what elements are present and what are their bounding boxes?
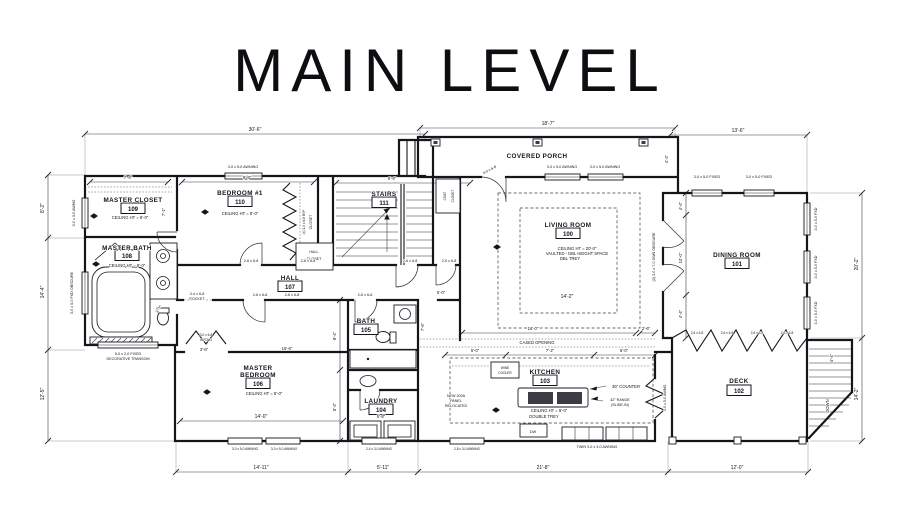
door-porch-label: 3-0 x 6-8 (482, 165, 497, 175)
room-master-closet-number: 109 (128, 207, 139, 213)
transom-label-1: 5-0 x 2-0 FIXED (115, 352, 142, 356)
coat-closet-box (436, 179, 460, 213)
dim-porch-depth: 4'-4" (664, 154, 669, 163)
dim-deck-stair: 4'-4" (829, 353, 834, 362)
dim-top-mid: 18'-7" (542, 121, 555, 127)
room-master-bath-number: 108 (122, 254, 133, 260)
window-porch-1-label: 3-0 x 5-0 AWNING (547, 165, 578, 169)
dim-dining-1: 4'-4" (678, 201, 683, 210)
deck-door-label-3: 2-6 x 6-8 (751, 331, 764, 335)
deck-door-label-2: 2-6 x 6-8 (721, 331, 734, 335)
door-label-7: 2-0 x 6-8 (442, 259, 457, 263)
swing-doors-label: (2) 3-0 x 7-0 SWN OBSCURE (652, 232, 656, 282)
hall-closet-1: HALL (309, 250, 318, 254)
window-mbr-1-label: 3-0 x 5-0 AWNING (232, 447, 259, 451)
dim-laundry: 5'-8" (377, 414, 386, 419)
dim-right-1: 20'-2" (854, 257, 860, 270)
window-dining-r2-label: 3-0 x 5-0 FXD (814, 255, 818, 278)
dim-left-2: 14'-4" (40, 285, 46, 298)
room-laundry-number: 104 (376, 408, 387, 414)
window-dining-r1-label: 3-0 x 5-0 FXD (814, 207, 818, 230)
room-master-bedroom-number: 106 (253, 382, 264, 388)
dim-dining-2: 10'-0" (678, 252, 683, 263)
room-kitchen-number: 103 (540, 379, 551, 385)
panel-note-1: NEW 200A (447, 394, 466, 398)
dim-bath-side: 7'-6" (420, 322, 425, 331)
room-bath: BATH (357, 318, 376, 325)
deck-post (734, 437, 741, 444)
room-deck-number: 102 (734, 389, 745, 395)
room-master-bath: MASTER BATH (102, 245, 152, 252)
sink (360, 376, 376, 387)
room-bedroom1-number: 110 (235, 200, 245, 206)
room-dining: DINING ROOM (713, 252, 761, 259)
dim-closet-side: 7'-1" (161, 207, 166, 216)
room-dining-number: 101 (732, 262, 743, 268)
bedroom-closet-doors: (4) 1-9 x 6-8 BYP (302, 210, 306, 235)
dim-bottom-4: 12'-0" (731, 465, 744, 471)
room-bath-number: 105 (361, 328, 372, 334)
room-stairs: STAIRS (371, 191, 396, 198)
dim-living-offset: 2'-6" (642, 326, 651, 331)
master-closet-note: CEILING HT = 8'-0" (112, 215, 149, 220)
dim-kitchen-3: 5'-0" (620, 348, 629, 353)
room-bedroom1: BEDROOM #1 (217, 190, 263, 197)
dim-bottom-1: 14'-11" (253, 465, 268, 471)
shower (350, 350, 416, 368)
door-label-1: 2-6 x 6-8 (244, 259, 259, 263)
coat-closet-1: COAT (443, 192, 447, 201)
kitchen-note-1: CEILING HT = 9'-0" (531, 408, 568, 413)
panel-note-3: RELOCATED (445, 404, 468, 408)
room-hall-number: 107 (285, 285, 296, 291)
room-kitchen: KITCHEN (530, 369, 561, 376)
window-twin-label: TWIN 3-0 x 3-0 AWNING (577, 445, 618, 449)
kitchen-awning-label: 3-0 x 5-0 AWNG (663, 385, 667, 412)
door-label-4: 2-6 x 6-8 (285, 293, 300, 297)
bifold-label-2: BIFOLD (200, 338, 212, 342)
window-left-1-label: 3-0 x 3-0 AWNG (72, 200, 76, 227)
dim-dining-3: 4'-4" (678, 309, 683, 318)
transom-label-2: DECORATIVE TRANSOM (106, 357, 149, 361)
dashed-outlines (88, 183, 655, 423)
door-label-5: 2-6 x 6-8 (358, 293, 373, 297)
window-dining-2-label: 3-0 x 5-0 FIXED (746, 175, 773, 179)
deck-post (799, 437, 806, 444)
bedroom-closet-label: CLOSET (309, 214, 313, 230)
bifold-label-1: 3-0 x 6-8 (200, 333, 213, 337)
window-dining-1-label: 3-0 x 5-0 FIXED (694, 175, 721, 179)
living-note-3: DBL TREY (560, 256, 580, 261)
bedroom1-note: CEILING HT = 8'-0" (222, 211, 259, 216)
wine-cooler-box (491, 362, 519, 378)
cased-opening-note: CASED OPENING (520, 340, 555, 345)
wine-note-1: WINE (501, 366, 509, 370)
deck-post (669, 437, 676, 444)
window-hall-label: 2-8 x 3-0 AWNING (454, 447, 481, 451)
dim-left-3: 12'-5" (40, 387, 46, 400)
dim-kitchen-1: 5'-0" (471, 348, 480, 353)
room-living: LIVING ROOM (545, 222, 592, 229)
dim-bed1-top: 9'-9" (243, 175, 252, 180)
pocket-door-label-2: POCKET (189, 297, 205, 301)
deck-door-label-1: 2-6 x 6-8 (691, 331, 704, 335)
counter-note: 36" COUNTER (612, 384, 640, 389)
window-left-2-label: 3-0 x 5-0 FXD OBSCURE (70, 271, 74, 314)
window-seat (562, 427, 603, 440)
room-covered-porch: COVERED PORCH (507, 153, 568, 160)
floor-plan-drawing: 30'-6" 18'-7" 13'-6" 8'-2" 14'-4" 12'-5"… (0, 0, 900, 506)
dim-left-1: 8'-2" (40, 203, 46, 213)
panel-note-2: PANEL (450, 399, 462, 403)
dim-mbr-top: 16'-6" (282, 346, 293, 351)
master-bedroom-note: CEILING HT = 8'-0" (246, 391, 283, 396)
bathtub (92, 267, 150, 337)
window-dining-r3-label: 3-0 x 5-0 FXD (814, 301, 818, 324)
room-laundry: LAUNDRY (364, 398, 398, 405)
room-deck: DECK (729, 378, 748, 385)
window-bedroom1-label: 3-0 x 5-0 AWNING (228, 165, 259, 169)
dim-bottom-2: 5'-11" (377, 465, 390, 471)
wine-note-2: COOLER (498, 371, 512, 375)
dim-kitchen-2: 7'-2" (546, 348, 555, 353)
dishwasher-label: DW (530, 430, 537, 434)
dim-top-left: 30'-6" (249, 127, 262, 133)
master-bath-note: CEILING HT = 9'-0" (109, 263, 146, 268)
room-master-bedroom-2: BEDROOM (240, 372, 276, 379)
dim-hall: 5'-0" (437, 290, 446, 295)
range (528, 392, 553, 404)
dim-bottom-3: 21'-8" (537, 465, 550, 471)
room-hall: HALL (281, 275, 299, 282)
room-master-closet: MASTER CLOSET (103, 197, 162, 204)
pocket-door-label-1: 3-4 x 6-8 (190, 292, 205, 296)
down-label: DOWN (825, 399, 830, 412)
dim-living-width: 14'-2" (561, 294, 574, 300)
range-note-2: (SLIDE-IN) (611, 403, 629, 407)
dim-mbr-width: 14'-0" (255, 414, 268, 420)
room-living-number: 100 (563, 232, 574, 238)
door-label-6: 2-6 x 6-8 (403, 259, 418, 263)
door-label-2: 2-6 x 6-8 (301, 259, 316, 263)
dim-top-right: 13'-6" (732, 128, 745, 134)
coat-closet-2: CLOSET (451, 190, 455, 203)
dim-stairs-top: 9'-9" (388, 176, 397, 181)
dim-mbr-right-1: 8'-4" (332, 331, 337, 340)
dim-living-bottom: 16'-0" (528, 326, 539, 331)
window-porch-2-label: 3-0 x 5-0 AWNING (590, 165, 621, 169)
window-mbr-2-label: 3-0 x 5-0 AWNING (271, 447, 298, 451)
door-label-3: 2-6 x 6-8 (253, 293, 268, 297)
kitchen-note-2: DOUBLE TREY (529, 414, 559, 419)
dim-closet-top: 7'-9" (124, 175, 133, 180)
room-stairs-number: 111 (379, 201, 389, 207)
deck-door-label-4: 2-6 x 6-8 (781, 331, 794, 335)
room-master-bedroom-1: MASTER (244, 365, 273, 372)
dim-mbr-right-2: 8'-4" (332, 402, 337, 411)
dim-right-2: 14'-2" (854, 387, 860, 400)
window-seat (606, 427, 647, 440)
window-laundry-label: 2-4 x 3-0 AWNING (366, 447, 393, 451)
dim-bifold: 3'-6" (200, 347, 209, 352)
range-note-1: 42" RANGE (610, 398, 630, 402)
